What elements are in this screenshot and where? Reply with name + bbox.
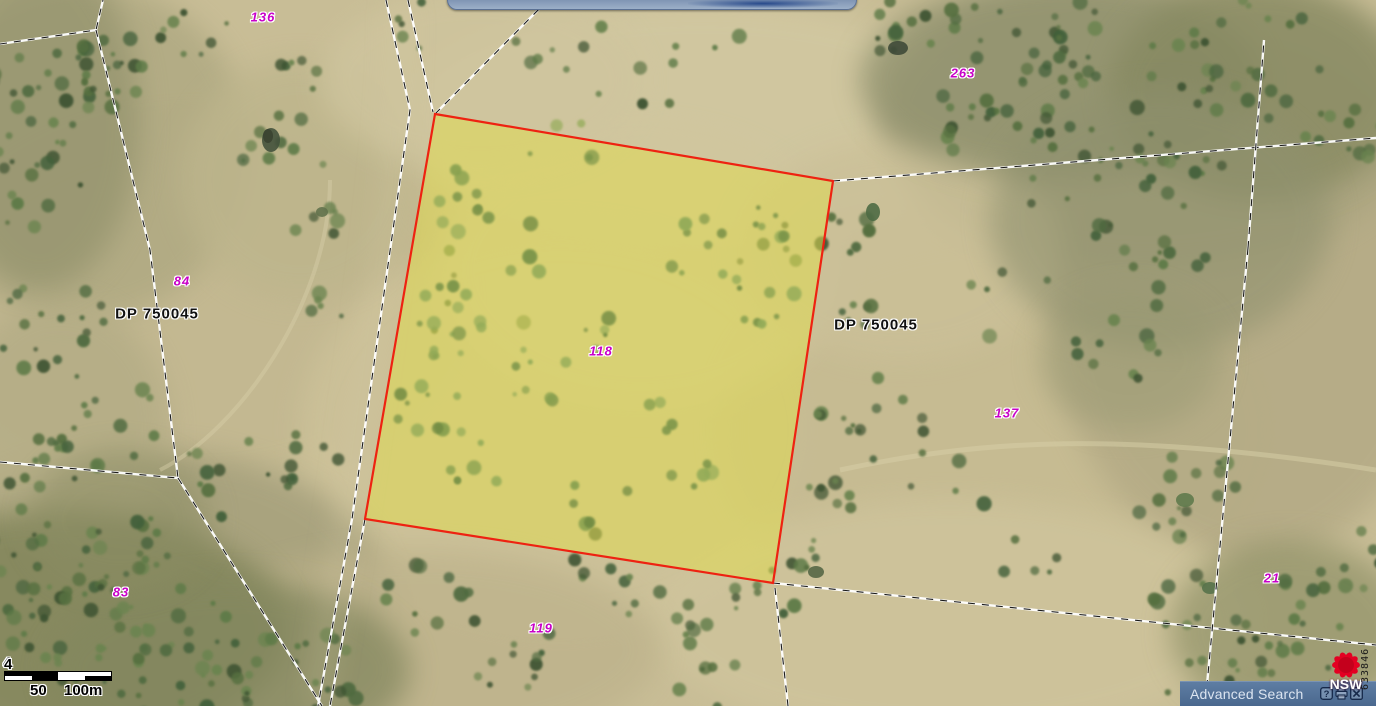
map-viewport: 136263841181378311921DP 750045DP 7500454… [0,0,1376,706]
scale-seg [58,676,85,680]
top-toolbar-remnant[interactable] [447,0,857,10]
advanced-search-link[interactable]: Advanced Search [1190,686,1304,702]
scale-seg [85,676,112,680]
scale-seg [5,676,32,680]
toolbar-button-remnant [688,0,838,8]
scale-bar-graphic [4,671,112,681]
aerial-map-canvas[interactable] [0,0,1376,706]
scale-seg [32,676,59,680]
scale-bar: 4 50 100m [2,656,172,704]
scale-label-50: 50 [30,682,47,699]
scale-label-100m: 100m [64,682,102,699]
map-sheet-number: 633846 [1360,648,1371,690]
